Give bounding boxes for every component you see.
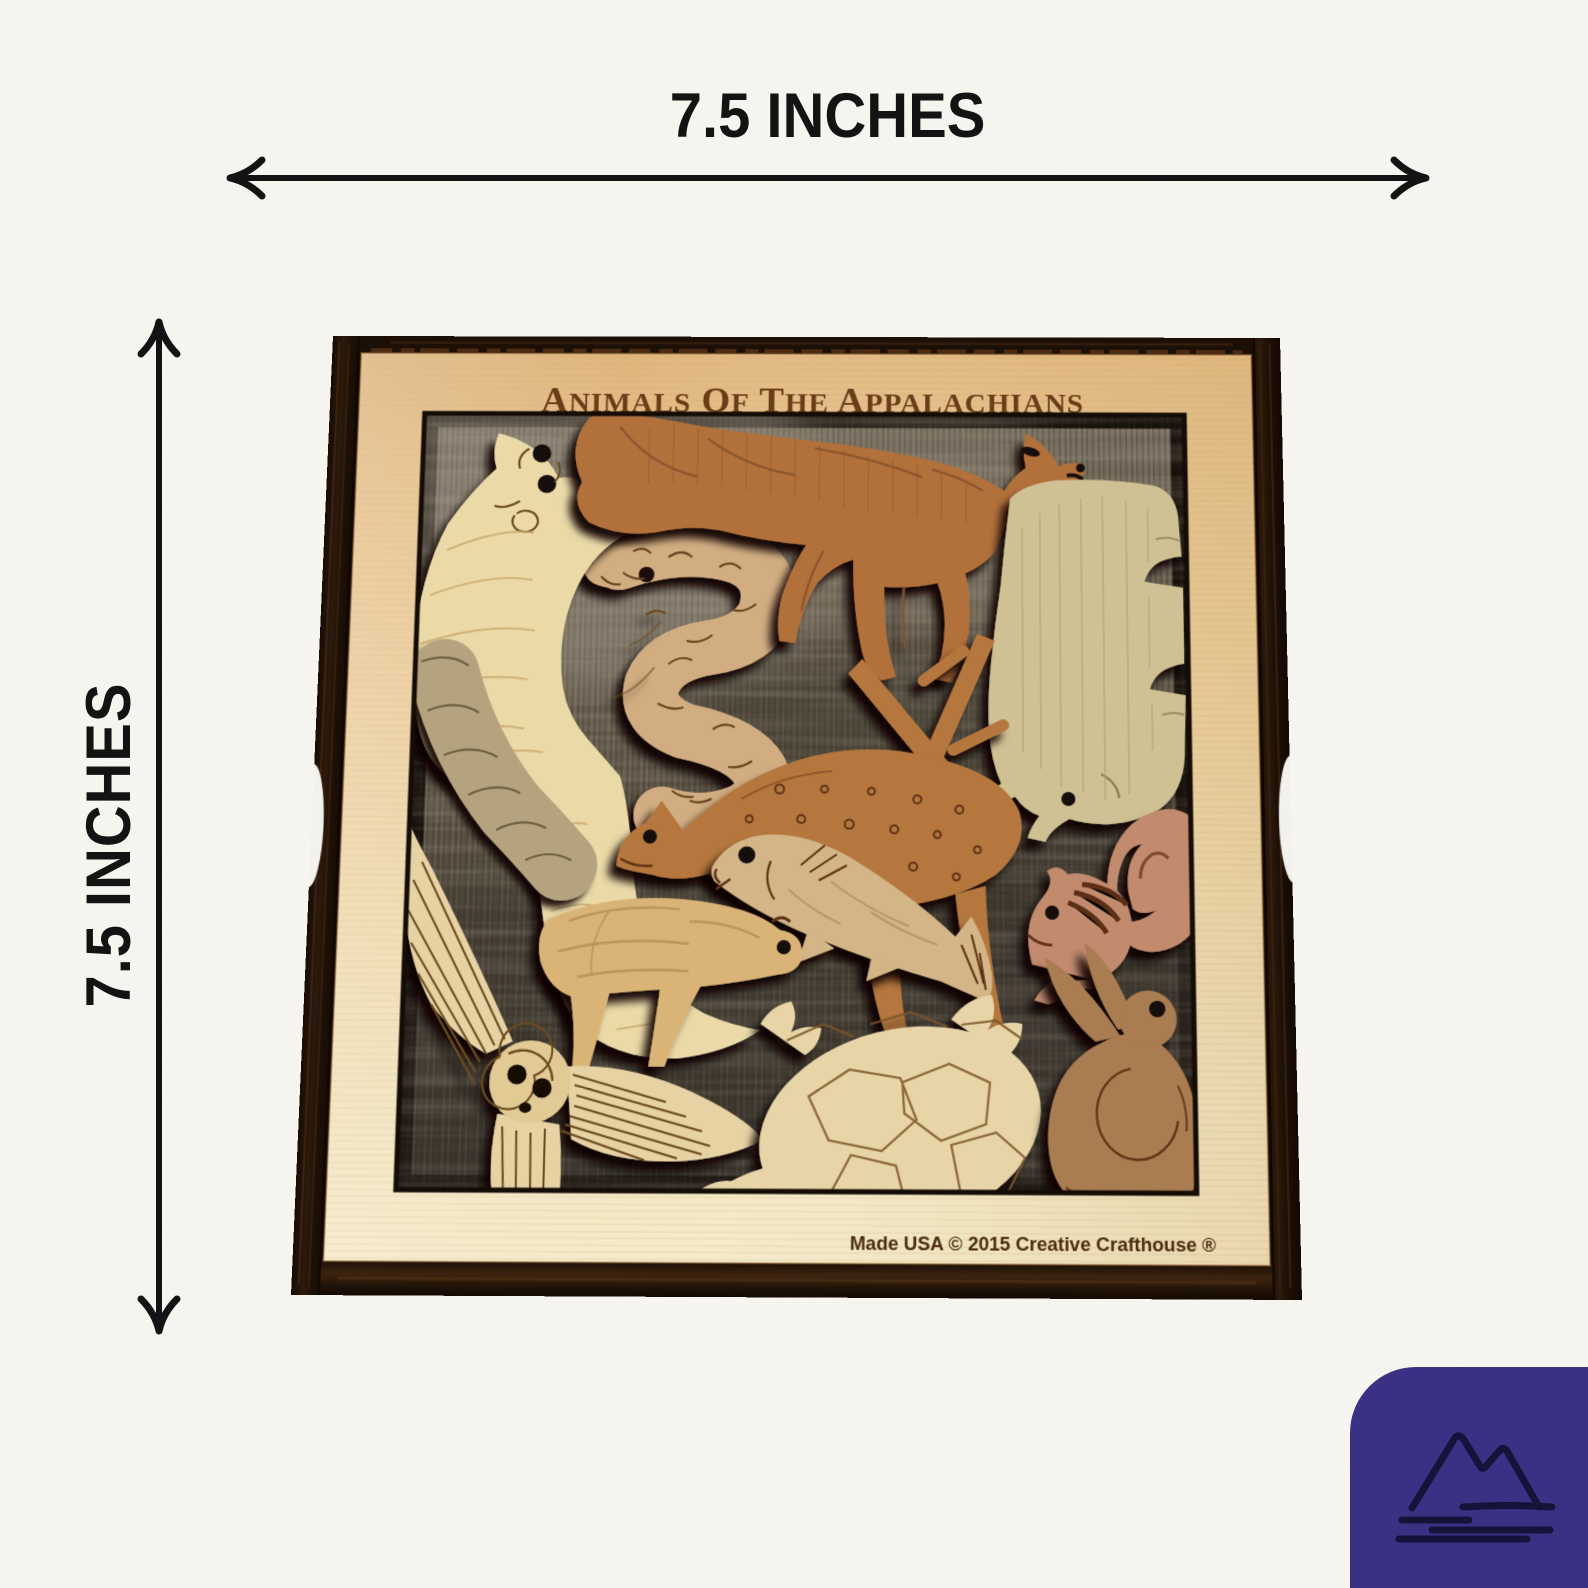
svg-text:Made USA © 2015 Creative Craf: Made USA © 2015 Creative Crafthouse ® [850,1232,1217,1256]
